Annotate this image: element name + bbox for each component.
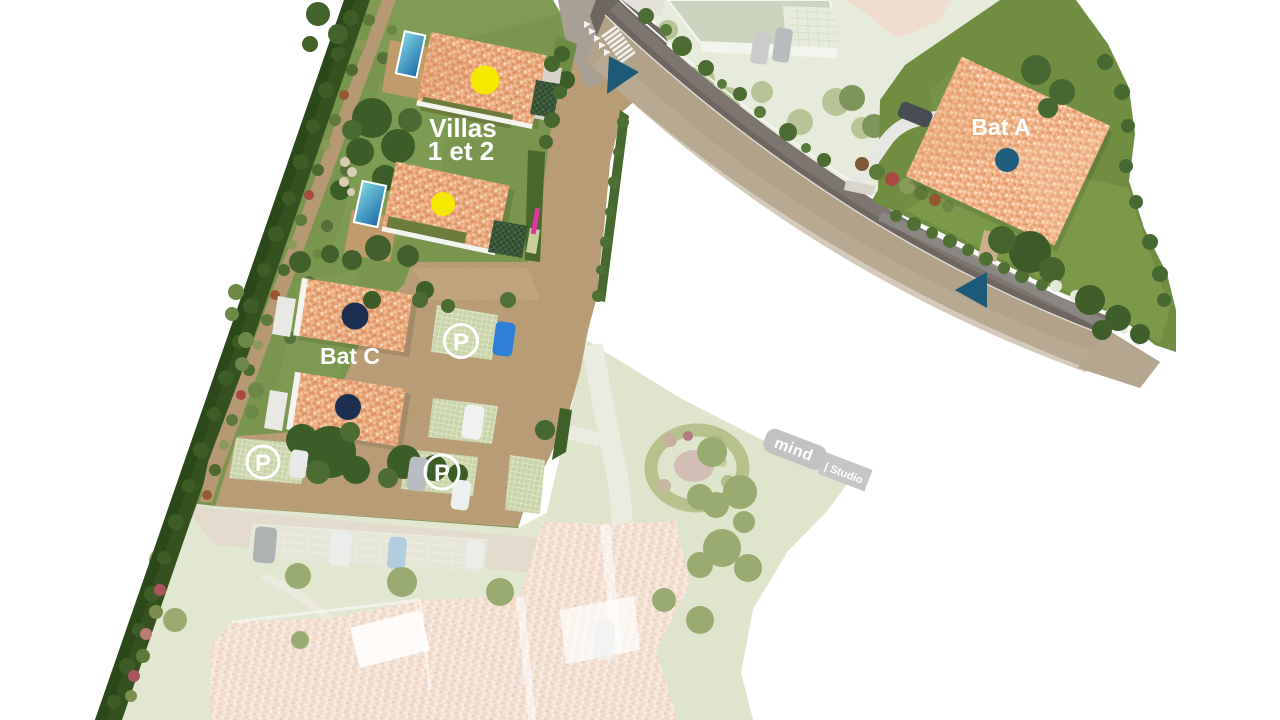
svg-text:Bat C: Bat C [320,343,380,369]
svg-text:1 et 2: 1 et 2 [428,136,495,166]
svg-text:P: P [434,460,450,487]
svg-text:P: P [255,450,271,477]
svg-text:P: P [453,329,469,356]
svg-text:Bat A: Bat A [971,114,1030,140]
